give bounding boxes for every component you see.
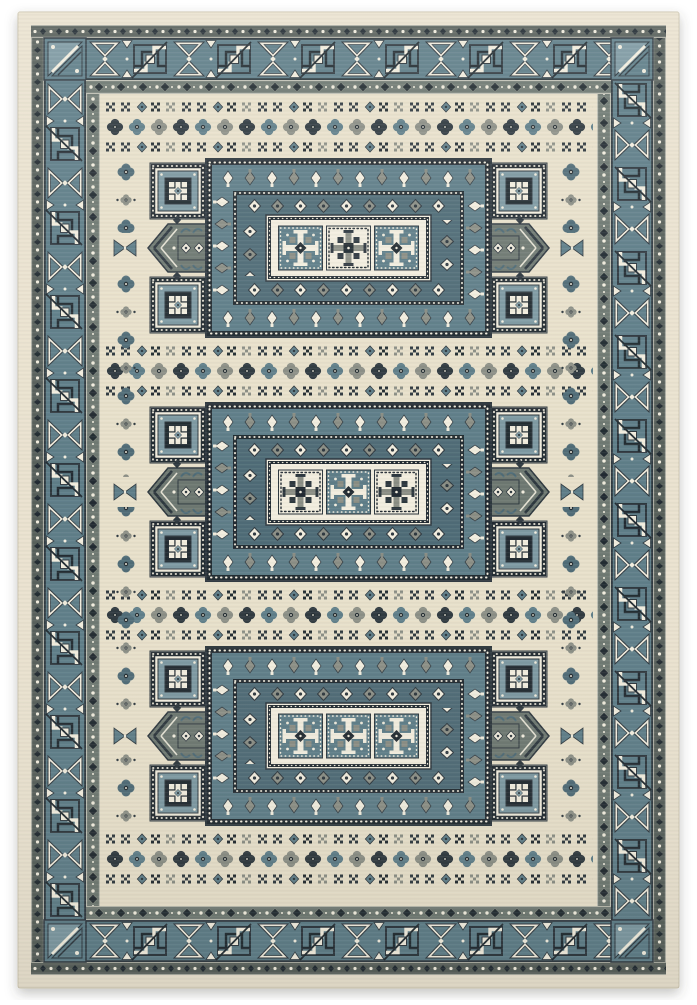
- photo-stage: Ivory and teal traditional area rug Top-…: [0, 0, 697, 1000]
- rug-photo: Ivory and teal traditional area rug Top-…: [0, 0, 697, 1000]
- lighting-sheen-overlay: [18, 12, 679, 988]
- rug: [18, 12, 679, 988]
